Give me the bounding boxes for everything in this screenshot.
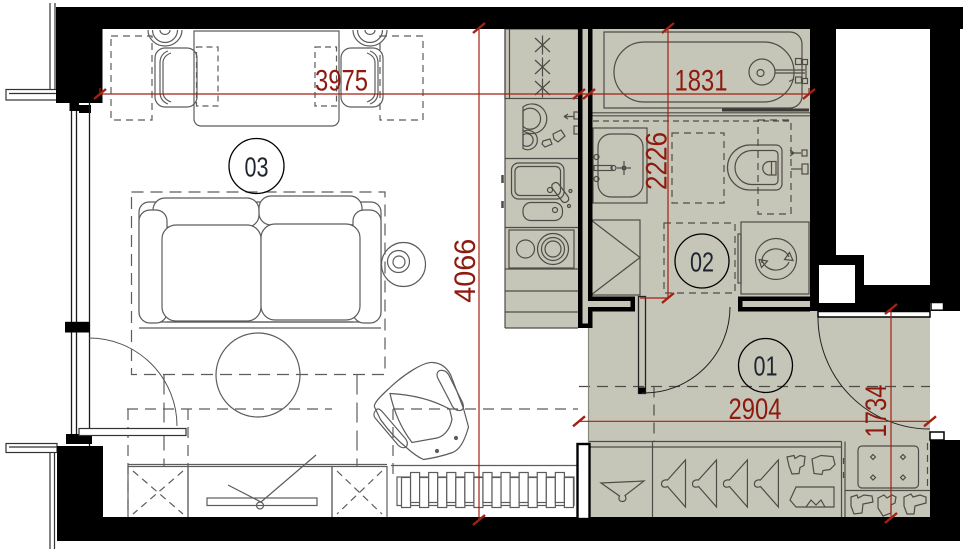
- svg-text:01: 01: [754, 351, 778, 382]
- svg-text:3975: 3975: [315, 64, 368, 97]
- svg-text:02: 02: [690, 246, 714, 277]
- svg-text:1734: 1734: [860, 385, 893, 438]
- svg-text:2904: 2904: [729, 393, 782, 426]
- svg-text:1831: 1831: [675, 64, 728, 97]
- svg-text:4066: 4066: [449, 239, 482, 303]
- svg-text:2226: 2226: [641, 132, 674, 190]
- svg-text:03: 03: [245, 151, 269, 182]
